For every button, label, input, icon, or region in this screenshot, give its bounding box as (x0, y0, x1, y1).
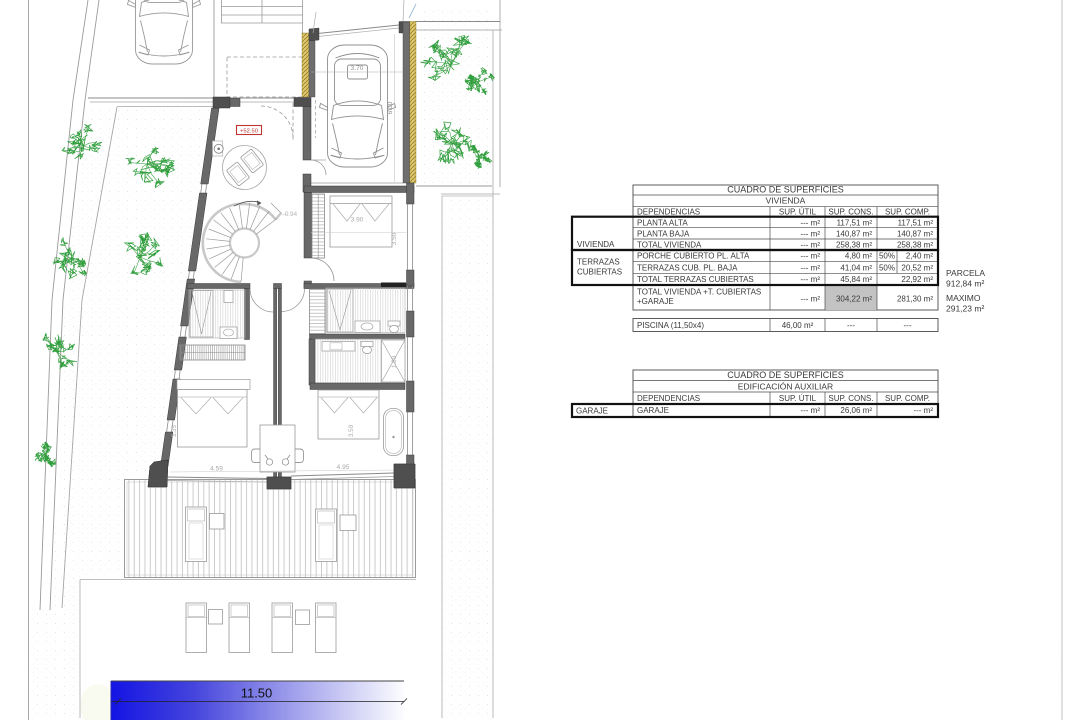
svg-text:VIVIENDA: VIVIENDA (766, 196, 806, 206)
svg-text:PLANTA ALTA: PLANTA ALTA (637, 218, 688, 227)
svg-text:46,00 m²: 46,00 m² (782, 321, 814, 330)
svg-text:VIVIENDA: VIVIENDA (577, 240, 615, 249)
svg-text:--- m²: --- m² (800, 406, 820, 415)
svg-text:0.94: 0.94 (285, 211, 298, 218)
svg-text:6.00: 6.00 (387, 101, 394, 114)
svg-text:---: --- (904, 321, 912, 330)
svg-text:11.50: 11.50 (241, 686, 273, 701)
svg-text:SUP. CONS.: SUP. CONS. (828, 394, 873, 403)
svg-text:117,51 m²: 117,51 m² (898, 218, 934, 227)
svg-text:--- m²: --- m² (800, 295, 820, 304)
svg-text:3.35: 3.35 (171, 424, 178, 437)
svg-text:912,84 m²: 912,84 m² (946, 279, 984, 289)
svg-text:GARAJE: GARAJE (576, 406, 608, 415)
svg-text:CUADRO DE SUPERFICIES: CUADRO DE SUPERFICIES (727, 370, 844, 380)
svg-text:CUADRO DE SUPERFICIES: CUADRO DE SUPERFICIES (727, 185, 844, 195)
svg-text:281,30 m²: 281,30 m² (897, 295, 933, 304)
svg-text:MAXIMO: MAXIMO (946, 293, 981, 303)
svg-text:117,51 m²: 117,51 m² (837, 218, 873, 227)
svg-text:26,06 m²: 26,06 m² (840, 406, 872, 415)
svg-text:TERRAZAS: TERRAZAS (577, 258, 620, 267)
svg-text:50%: 50% (879, 263, 895, 272)
svg-text:PLANTA BAJA: PLANTA BAJA (637, 229, 690, 238)
svg-text:EDIFICACIÓN AUXILIAR: EDIFICACIÓN AUXILIAR (738, 381, 833, 391)
svg-text:140,87 m²: 140,87 m² (836, 229, 872, 238)
svg-text:SUP. COMP.: SUP. COMP. (885, 394, 930, 403)
svg-text:SUP. ÚTIL: SUP. ÚTIL (779, 207, 817, 216)
svg-text:+52.50: +52.50 (240, 129, 258, 135)
svg-text:291,23 m²: 291,23 m² (946, 304, 984, 314)
svg-text:3.50: 3.50 (348, 424, 355, 437)
svg-text:--- m²: --- m² (800, 229, 820, 238)
svg-text:TOTAL VIVIENDA +T. CUBIERTAS: TOTAL VIVIENDA +T. CUBIERTAS (637, 288, 761, 297)
svg-text:SUP. COMP.: SUP. COMP. (885, 207, 930, 216)
svg-text:--- m²: --- m² (913, 406, 933, 415)
svg-text:4,80 m²: 4,80 m² (845, 252, 872, 261)
svg-text:41,04 m²: 41,04 m² (840, 263, 872, 272)
svg-text:3.50: 3.50 (391, 232, 398, 245)
svg-text:--- m²: --- m² (800, 241, 820, 250)
svg-text:TOTAL VIVIENDA: TOTAL VIVIENDA (637, 241, 702, 250)
svg-text:PISCINA (11,50x4): PISCINA (11,50x4) (637, 321, 704, 330)
svg-text:304,22 m²: 304,22 m² (836, 295, 872, 304)
svg-text:SUP. ÚTIL: SUP. ÚTIL (779, 394, 817, 403)
svg-text:3.90: 3.90 (351, 217, 364, 224)
svg-text:3.70: 3.70 (351, 65, 364, 72)
svg-text:PARCELA: PARCELA (946, 268, 985, 278)
svg-text:--- m²: --- m² (800, 275, 820, 284)
svg-text:---: --- (847, 321, 855, 330)
svg-text:4.95: 4.95 (337, 464, 350, 471)
svg-text:45,84 m²: 45,84 m² (840, 275, 872, 284)
svg-text:CUBIERTAS: CUBIERTAS (577, 268, 622, 277)
svg-text:22,92 m²: 22,92 m² (901, 275, 933, 284)
svg-text:SUP. CONS.: SUP. CONS. (828, 207, 873, 216)
svg-text:4.59: 4.59 (210, 466, 223, 473)
svg-text:DEPENDENCIAS: DEPENDENCIAS (637, 394, 700, 403)
svg-text:TOTAL TERRAZAS CUBIERTAS: TOTAL TERRAZAS CUBIERTAS (637, 275, 754, 284)
svg-text:2,40 m²: 2,40 m² (906, 252, 933, 261)
svg-text:DEPENDENCIAS: DEPENDENCIAS (637, 207, 700, 216)
svg-text:--- m²: --- m² (800, 252, 820, 261)
svg-text:TERRAZAS CUB. PL. BAJA: TERRAZAS CUB. PL. BAJA (637, 263, 738, 272)
svg-text:--- m²: --- m² (800, 263, 820, 272)
svg-text:140,87 m²: 140,87 m² (897, 229, 933, 238)
svg-text:PORCHE CUBIERTO PL. ALTA: PORCHE CUBIERTO PL. ALTA (637, 252, 750, 261)
svg-text:--- m²: --- m² (800, 218, 820, 227)
svg-text:GARAJE: GARAJE (637, 406, 669, 415)
svg-text:20,52 m²: 20,52 m² (901, 263, 933, 272)
svg-text:50%: 50% (879, 252, 895, 261)
svg-text:1.80: 1.80 (391, 355, 398, 368)
svg-text:258,38 m²: 258,38 m² (836, 241, 872, 250)
svg-text:258,38 m²: 258,38 m² (897, 241, 933, 250)
svg-text:+GARAJE: +GARAJE (637, 297, 674, 306)
